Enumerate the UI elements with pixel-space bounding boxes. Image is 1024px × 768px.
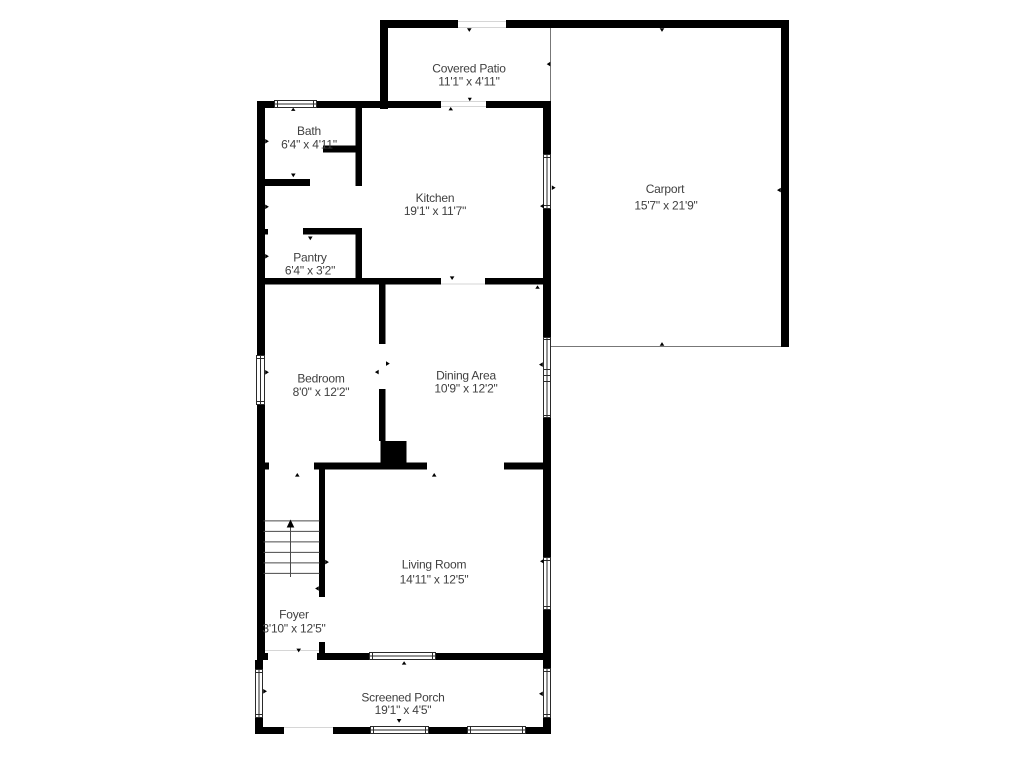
- svg-text:11'1" x 4'11": 11'1" x 4'11": [438, 75, 499, 89]
- svg-text:6'4" x 3'2": 6'4" x 3'2": [285, 264, 335, 278]
- svg-text:Foyer: Foyer: [279, 608, 309, 622]
- svg-text:14'11" x 12'5": 14'11" x 12'5": [400, 573, 469, 587]
- svg-text:15'7" x 21'9": 15'7" x 21'9": [634, 199, 697, 213]
- svg-text:10'9" x 12'2": 10'9" x 12'2": [434, 382, 497, 396]
- svg-text:Dining Area: Dining Area: [436, 369, 496, 383]
- svg-text:Carport: Carport: [646, 182, 685, 196]
- svg-text:Covered Patio: Covered Patio: [432, 62, 506, 76]
- svg-text:Living Room: Living Room: [402, 558, 467, 572]
- svg-text:8'0" x 12'2": 8'0" x 12'2": [293, 385, 350, 399]
- svg-text:3'10" x 12'5": 3'10" x 12'5": [262, 622, 325, 636]
- svg-text:19'1" x 11'7": 19'1" x 11'7": [404, 204, 466, 218]
- svg-text:19'1" x 4'5": 19'1" x 4'5": [375, 703, 432, 717]
- svg-text:6'4" x 4'11": 6'4" x 4'11": [281, 138, 337, 152]
- svg-text:Bath: Bath: [297, 124, 321, 138]
- svg-text:Pantry: Pantry: [293, 251, 327, 265]
- svg-text:Kitchen: Kitchen: [416, 191, 455, 205]
- svg-text:Bedroom: Bedroom: [297, 372, 344, 386]
